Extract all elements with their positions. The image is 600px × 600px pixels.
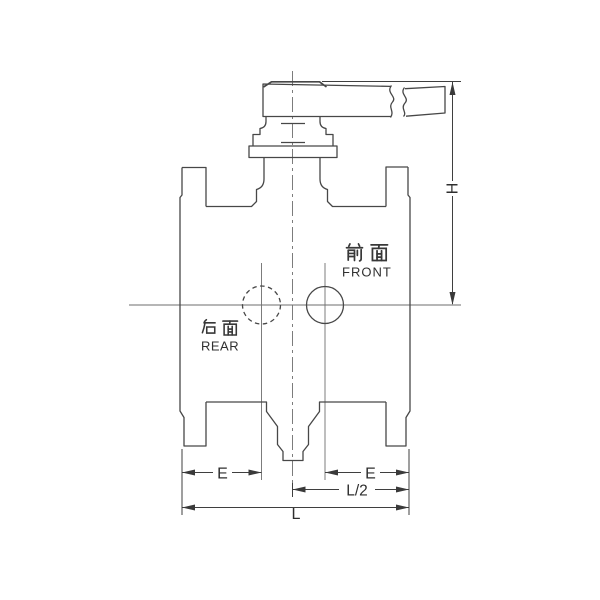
rear-label-en: REAR — [201, 339, 239, 354]
flange-right-top — [386, 167, 408, 207]
e-left-arrow-l — [182, 470, 195, 476]
front-label-en: FRONT — [342, 265, 392, 280]
handle-assembly — [263, 82, 445, 118]
dim-label-h: H — [445, 183, 462, 195]
valve-body — [180, 158, 410, 461]
dim-label-e-right: E — [365, 466, 376, 483]
break-line-right — [403, 88, 406, 117]
l-arrow-r — [396, 505, 409, 511]
h-arrow-down — [450, 292, 456, 305]
flange-left-top — [182, 168, 206, 207]
e-left-arrow-r — [249, 470, 262, 476]
e-right-arrow-r — [396, 470, 409, 476]
centerlines — [129, 71, 461, 491]
front-label: FRONT — [342, 244, 392, 280]
e-right-arrow-l — [325, 470, 338, 476]
dim-label-length: L — [292, 506, 301, 523]
bonnet-neck-left — [206, 158, 264, 207]
l-arrow-l — [182, 505, 195, 511]
char-hou — [202, 320, 215, 333]
h-arrow-up — [450, 82, 456, 95]
handle-end — [405, 87, 445, 117]
bonnet-flange — [249, 146, 337, 158]
flange-left-face — [180, 168, 206, 447]
half-l-arrow-l — [293, 487, 306, 493]
stem-gland — [249, 117, 337, 158]
gland-right — [320, 117, 333, 147]
body-bottom-drain — [206, 402, 386, 461]
drawing-canvas: H E E L/2 L FRONT REAR — [0, 0, 600, 600]
dim-label-half-length: L/2 — [346, 483, 368, 500]
char-mian-rear — [223, 321, 238, 335]
bonnet-neck-right — [320, 158, 386, 207]
handle-bar — [263, 84, 391, 117]
dim-label-e-left: E — [217, 466, 228, 483]
gland-left — [253, 117, 266, 147]
break-line-left — [390, 86, 394, 118]
flange-right-face — [386, 167, 410, 446]
char-qian — [347, 244, 363, 261]
char-mian-front — [371, 245, 387, 261]
rear-label: REAR — [201, 320, 239, 354]
valve-technical-drawing: H E E L/2 L FRONT REAR — [0, 0, 600, 600]
half-l-arrow-r — [396, 487, 409, 493]
